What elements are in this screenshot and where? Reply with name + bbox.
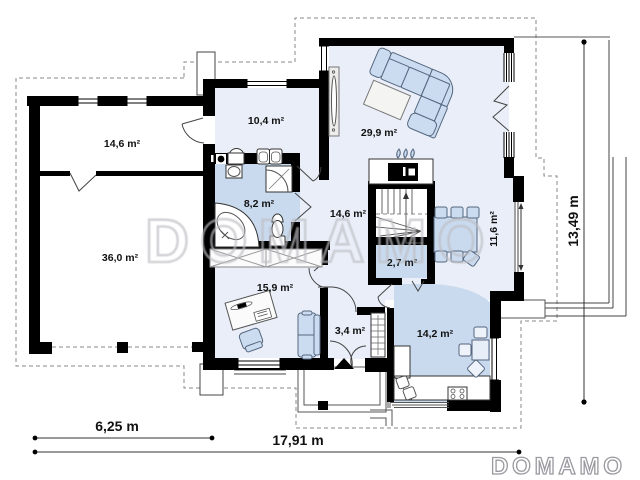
svg-text:6,25 m: 6,25 m [95,418,139,434]
svg-text:3,4 m²: 3,4 m² [335,325,366,337]
svg-text:DOMAMO: DOMAMO [491,453,626,480]
svg-text:14,2 m²: 14,2 m² [417,328,454,340]
svg-text:DOMAMO: DOMAMO [145,207,496,275]
svg-text:36,0 m²: 36,0 m² [102,252,139,264]
svg-text:17,91 m: 17,91 m [272,432,323,448]
svg-text:15,9 m²: 15,9 m² [257,282,294,294]
svg-text:13,49 m: 13,49 m [565,195,581,246]
svg-text:14,6 m²: 14,6 m² [104,138,141,150]
svg-text:29,9 m²: 29,9 m² [361,127,398,139]
svg-text:10,4 m²: 10,4 m² [248,115,285,127]
